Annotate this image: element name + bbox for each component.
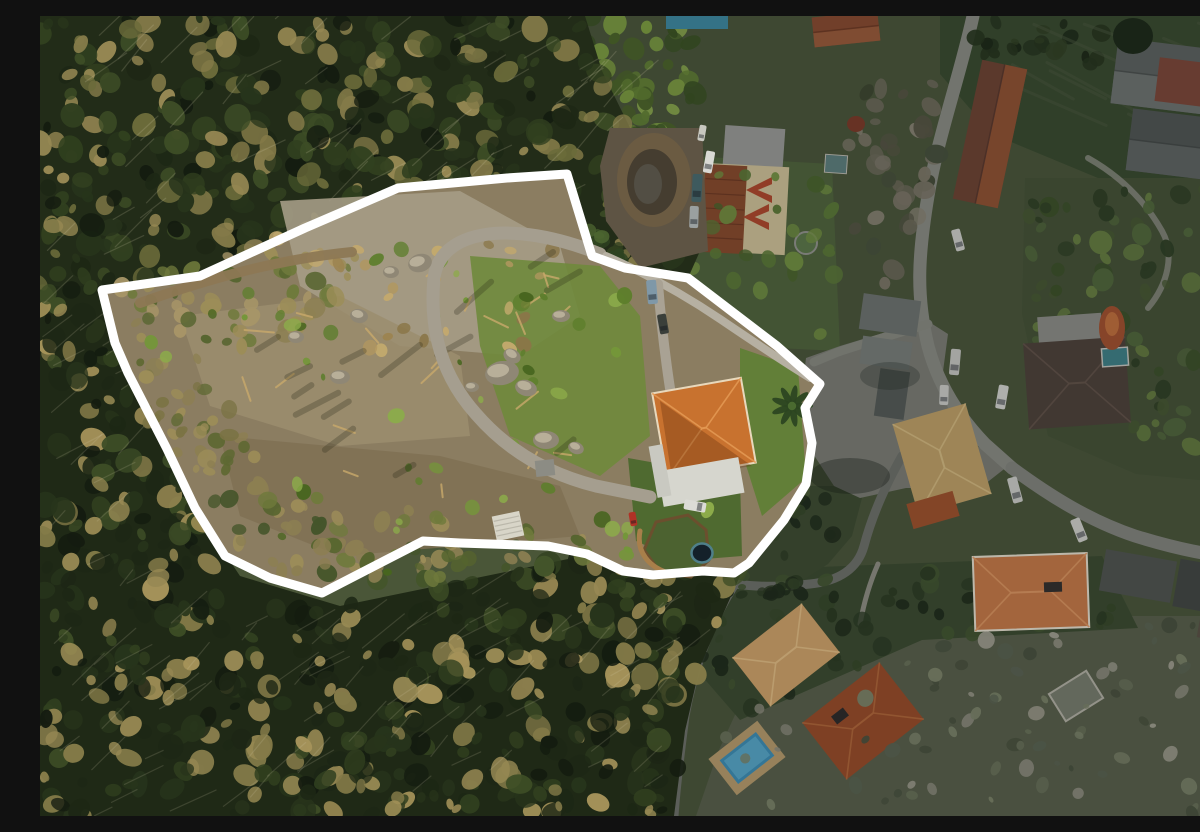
blue-car-drive-windshield bbox=[648, 294, 656, 300]
silver-car-parking-windshield bbox=[690, 219, 697, 224]
silver-car-parking bbox=[689, 206, 699, 228]
boulder-highlight bbox=[289, 332, 299, 339]
boulder-highlight bbox=[384, 267, 394, 274]
boulder-highlight bbox=[332, 371, 345, 379]
boulder-highlight bbox=[553, 311, 565, 318]
blue-car-drive bbox=[646, 280, 658, 305]
teal-car-parking bbox=[691, 174, 702, 202]
plot-logs bbox=[441, 484, 442, 497]
forest-canopy-bottom bbox=[169, 522, 191, 546]
palm-tree-crown bbox=[788, 402, 796, 410]
main-house-roof-ridge bbox=[702, 428, 706, 429]
plot-trees-northwest bbox=[236, 338, 247, 355]
teal-car-parking-windshield bbox=[693, 191, 701, 198]
aerial-photograph bbox=[40, 16, 1200, 816]
earth-mound-core bbox=[634, 164, 662, 204]
forest-canopy-bottom bbox=[231, 729, 252, 750]
boulder-highlight bbox=[466, 383, 475, 389]
aerial-scene-canvas bbox=[40, 16, 1200, 816]
round-pool-plot bbox=[692, 544, 713, 563]
small-gray-shed bbox=[535, 459, 556, 477]
boulder-highlight bbox=[535, 433, 552, 443]
forest-canopy-bottom bbox=[105, 784, 121, 797]
